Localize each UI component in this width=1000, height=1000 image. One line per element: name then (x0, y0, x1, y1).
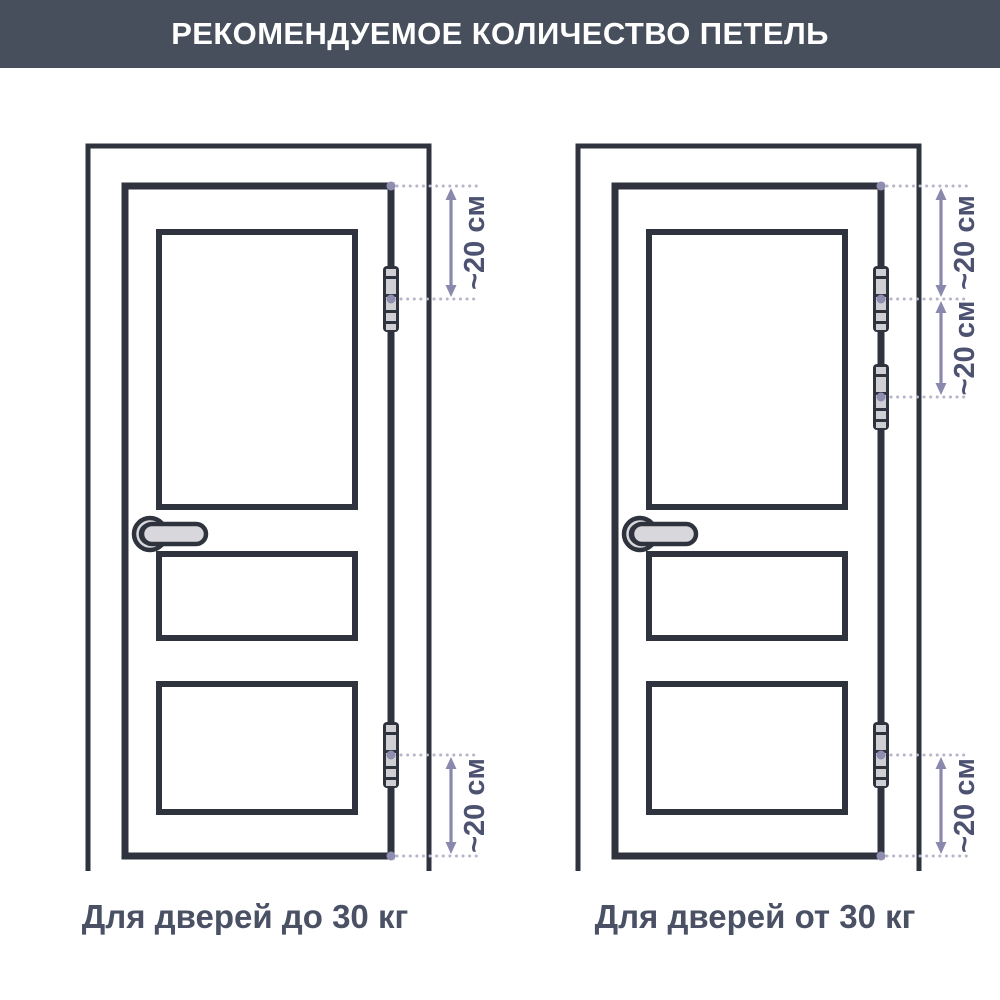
dimension-top: ~20 см (877, 182, 982, 304)
dimension-label: ~20 см (949, 758, 981, 853)
door-figure-heavy: ~20 см ~20 см ~20 см (578, 146, 981, 871)
caption-light-door: Для дверей до 30 кг (0, 894, 490, 940)
header-bar: РЕКОМЕНДУЕМОЕ КОЛИЧЕСТВО ПЕТЕЛЬ (0, 0, 1000, 68)
dimension-label: ~20 см (949, 301, 981, 396)
caption-heavy-door: Для дверей от 30 кг (520, 894, 990, 940)
door-panel-bottom (649, 684, 845, 812)
dimension-bottom: ~20 см (387, 751, 492, 861)
dimension-label: ~20 см (459, 758, 491, 853)
dimension-top: ~20 см (387, 182, 492, 304)
dimension-bottom: ~20 см (877, 751, 982, 861)
door-handle (134, 518, 206, 550)
door-panel-top (649, 232, 845, 507)
door-panel-middle (649, 554, 845, 638)
door-panel-top (159, 232, 355, 507)
dimension-middle: ~20 см (877, 301, 982, 402)
dimension-label: ~20 см (459, 195, 491, 290)
door-figure-light: ~20 см ~20 см (88, 146, 491, 871)
door-panel-bottom (159, 684, 355, 812)
door-panel-middle (159, 554, 355, 638)
dimension-label: ~20 см (949, 195, 981, 290)
page-title: РЕКОМЕНДУЕМОЕ КОЛИЧЕСТВО ПЕТЕЛЬ (171, 16, 829, 52)
infographic-page: РЕКОМЕНДУЕМОЕ КОЛИЧЕСТВО ПЕТЕЛЬ (0, 0, 1000, 1000)
hinge-count-diagram: ~20 см ~20 см (0, 68, 1000, 1000)
door-handle (624, 518, 696, 550)
